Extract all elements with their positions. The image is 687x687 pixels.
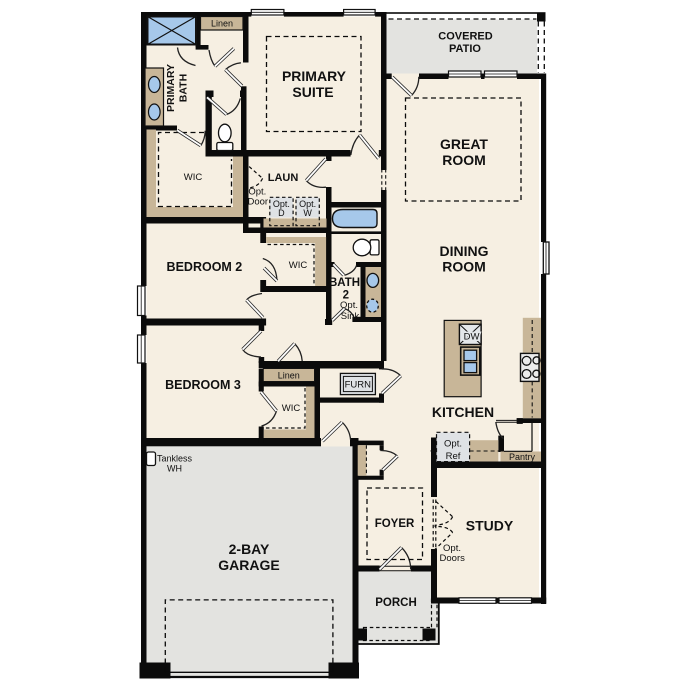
svg-text:PORCH: PORCH [375,597,417,609]
svg-text:FOYER: FOYER [375,518,415,530]
svg-text:PRIMARY: PRIMARY [282,68,347,84]
svg-text:WIC: WIC [282,403,301,414]
svg-text:FURN: FURN [345,380,372,391]
svg-text:ROOM: ROOM [442,259,486,275]
svg-text:Sink: Sink [341,311,360,322]
svg-text:SUITE: SUITE [292,84,333,100]
svg-text:Doors: Doors [440,553,466,564]
svg-text:ROOM: ROOM [442,152,486,168]
svg-text:PRIMARY: PRIMARY [165,64,177,112]
svg-text:GREAT: GREAT [440,136,488,152]
svg-text:WIC: WIC [289,260,308,271]
svg-text:W: W [303,208,312,218]
svg-text:DINING: DINING [440,243,489,259]
svg-text:Tankless: Tankless [157,454,193,464]
svg-text:WH: WH [167,464,182,474]
svg-text:Linen: Linen [211,19,233,29]
svg-text:BATH: BATH [329,277,360,289]
svg-text:BEDROOM 2: BEDROOM 2 [167,260,243,274]
svg-text:GARAGE: GARAGE [218,557,279,573]
svg-text:Opt.: Opt. [444,439,462,450]
svg-text:COVERED: COVERED [438,31,492,43]
svg-text:Opt.: Opt. [340,300,358,311]
svg-text:2-BAY: 2-BAY [229,541,270,557]
svg-text:Linen: Linen [278,371,300,381]
svg-text:D: D [278,208,285,218]
svg-text:Ref: Ref [446,451,461,462]
svg-text:LAUN: LAUN [268,172,299,184]
svg-text:PATIO: PATIO [449,43,481,55]
svg-text:DW: DW [464,332,480,343]
svg-text:Pantry: Pantry [509,452,536,462]
svg-text:WIC: WIC [184,172,203,183]
svg-text:KITCHEN: KITCHEN [432,404,494,420]
svg-text:Door: Door [248,197,269,208]
svg-text:BATH: BATH [178,74,190,102]
svg-text:BEDROOM 3: BEDROOM 3 [165,378,241,392]
svg-text:STUDY: STUDY [466,518,514,534]
